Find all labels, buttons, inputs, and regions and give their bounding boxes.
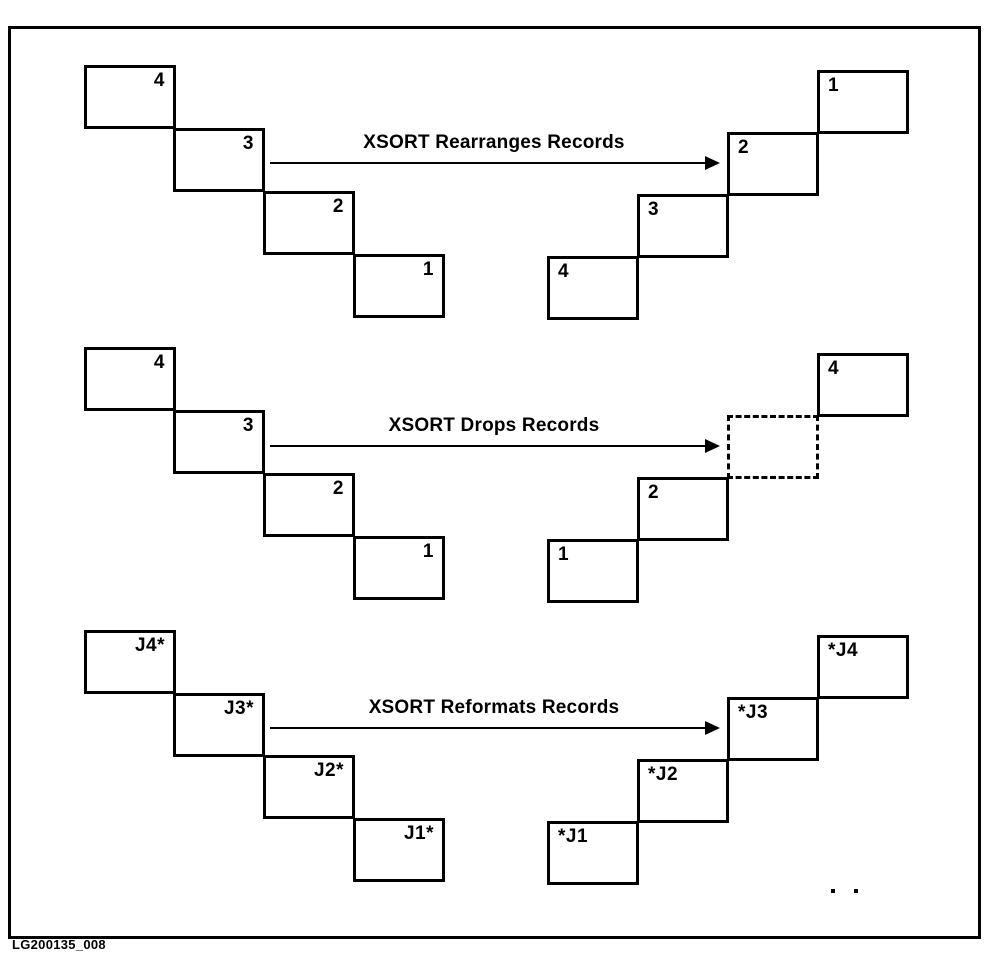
scan-artifact-dot <box>831 889 835 893</box>
record-label: 2 <box>333 478 344 500</box>
reformats-output-box-j3: *J3 <box>727 697 819 761</box>
record-label: 4 <box>828 358 839 380</box>
record-label: J3* <box>224 698 254 720</box>
reformats-input-box-j4: J4* <box>84 630 176 694</box>
record-label: 2 <box>648 482 659 504</box>
rearranges-output-box-1: 1 <box>817 70 909 134</box>
reformats-input-box-j3: J3* <box>173 693 265 757</box>
arrow-head-icon <box>705 439 720 453</box>
rearranges-input-box-2: 2 <box>263 191 355 255</box>
figure-canvas: 4 3 2 1 XSORT Rearranges Records 1 2 3 4… <box>0 0 994 973</box>
arrow-line <box>270 445 718 447</box>
arrow-line <box>270 727 718 729</box>
reformats-output-box-j2: *J2 <box>637 759 729 823</box>
record-label: 1 <box>423 541 434 563</box>
drops-output-box-2: 2 <box>637 477 729 541</box>
drops-input-box-3: 3 <box>173 410 265 474</box>
record-label: 1 <box>558 544 569 566</box>
drops-input-box-1: 1 <box>353 536 445 600</box>
reformats-output-box-j1: *J1 <box>547 821 639 885</box>
record-label: 4 <box>558 261 569 283</box>
drops-arrow: XSORT Drops Records <box>270 415 718 447</box>
drops-output-dropped-record-placeholder <box>727 415 819 479</box>
record-label: 2 <box>738 137 749 159</box>
drops-input-box-4: 4 <box>84 347 176 411</box>
record-label: J4* <box>135 635 165 657</box>
arrow-line <box>270 162 718 164</box>
record-label: *J3 <box>738 702 768 724</box>
record-label: 3 <box>243 133 254 155</box>
reformats-input-box-j2: J2* <box>263 755 355 819</box>
record-label: 1 <box>828 75 839 97</box>
reformats-arrow-label: XSORT Reformats Records <box>270 697 718 719</box>
rearranges-output-box-2: 2 <box>727 132 819 196</box>
scan-artifact-dot <box>854 889 858 893</box>
record-label: 2 <box>333 196 344 218</box>
record-label: *J1 <box>558 826 588 848</box>
rearranges-output-box-4: 4 <box>547 256 639 320</box>
arrow-head-icon <box>705 721 720 735</box>
drops-input-box-2: 2 <box>263 473 355 537</box>
record-label: 4 <box>154 70 165 92</box>
reformats-input-box-j1: J1* <box>353 818 445 882</box>
rearranges-output-box-3: 3 <box>637 194 729 258</box>
rearranges-arrow-label: XSORT Rearranges Records <box>270 132 718 154</box>
reformats-arrow: XSORT Reformats Records <box>270 697 718 729</box>
rearranges-input-box-1: 1 <box>353 254 445 318</box>
record-label: J1* <box>404 823 434 845</box>
rearranges-input-box-4: 4 <box>84 65 176 129</box>
drops-arrow-label: XSORT Drops Records <box>270 415 718 437</box>
rearranges-arrow: XSORT Rearranges Records <box>270 132 718 164</box>
reformats-output-box-j4: *J4 <box>817 635 909 699</box>
drops-output-box-1: 1 <box>547 539 639 603</box>
record-label: *J2 <box>648 764 678 786</box>
record-label: 4 <box>154 352 165 374</box>
record-label: J2* <box>314 760 344 782</box>
arrow-head-icon <box>705 156 720 170</box>
record-label: *J4 <box>828 640 858 662</box>
figure-id-caption: LG200135_008 <box>12 937 106 952</box>
record-label: 3 <box>243 415 254 437</box>
record-label: 3 <box>648 199 659 221</box>
drops-output-box-4: 4 <box>817 353 909 417</box>
record-label: 1 <box>423 259 434 281</box>
rearranges-input-box-3: 3 <box>173 128 265 192</box>
